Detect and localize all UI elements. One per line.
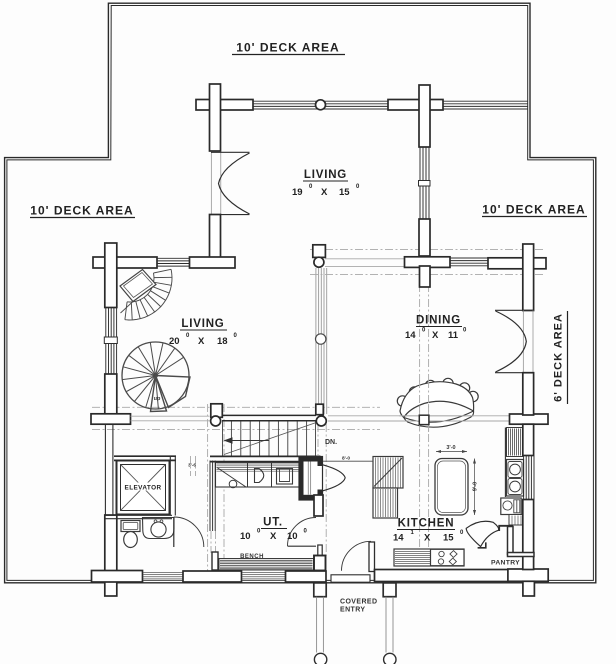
svg-text:11: 11 xyxy=(448,330,459,341)
svg-text:X: X xyxy=(432,330,439,341)
svg-text:9'-0: 9'-0 xyxy=(473,482,479,491)
svg-text:PANTRY: PANTRY xyxy=(491,560,520,567)
svg-text:19: 19 xyxy=(292,187,303,198)
svg-text:10: 10 xyxy=(287,531,298,542)
svg-text:15: 15 xyxy=(443,533,454,544)
svg-text:X: X xyxy=(321,187,328,198)
svg-text:COVERED: COVERED xyxy=(340,599,377,606)
svg-text:20: 20 xyxy=(169,336,180,347)
svg-text:6' DECK AREA: 6' DECK AREA xyxy=(553,313,565,402)
svg-text:KITCHEN: KITCHEN xyxy=(398,518,455,530)
svg-text:DINING: DINING xyxy=(416,315,461,327)
svg-text:14: 14 xyxy=(393,533,404,544)
svg-text:BENCH: BENCH xyxy=(240,554,264,560)
svg-text:15: 15 xyxy=(339,187,350,198)
svg-text:UT.: UT. xyxy=(263,517,283,529)
svg-text:LIVING: LIVING xyxy=(181,318,224,330)
svg-text:10' DECK AREA: 10' DECK AREA xyxy=(30,204,133,218)
svg-text:18: 18 xyxy=(217,336,228,347)
svg-text:X: X xyxy=(270,531,277,542)
svg-text:10' DECK AREA: 10' DECK AREA xyxy=(236,41,339,55)
svg-text:X: X xyxy=(424,533,431,544)
svg-text:8'-0: 8'-0 xyxy=(342,455,350,461)
svg-text:10' DECK AREA: 10' DECK AREA xyxy=(482,203,585,217)
svg-text:up: up xyxy=(154,396,161,402)
svg-text:ENTRY: ENTRY xyxy=(340,607,365,614)
svg-text:LIVING: LIVING xyxy=(304,169,347,181)
svg-text:14: 14 xyxy=(405,330,416,341)
svg-text:DN.: DN. xyxy=(325,439,337,446)
svg-text:3'-6: 3'-6 xyxy=(188,463,196,469)
svg-text:3'-0: 3'-0 xyxy=(446,445,455,451)
svg-text:ELEVATOR: ELEVATOR xyxy=(125,485,162,492)
svg-text:X: X xyxy=(198,336,205,347)
svg-text:10: 10 xyxy=(240,531,251,542)
